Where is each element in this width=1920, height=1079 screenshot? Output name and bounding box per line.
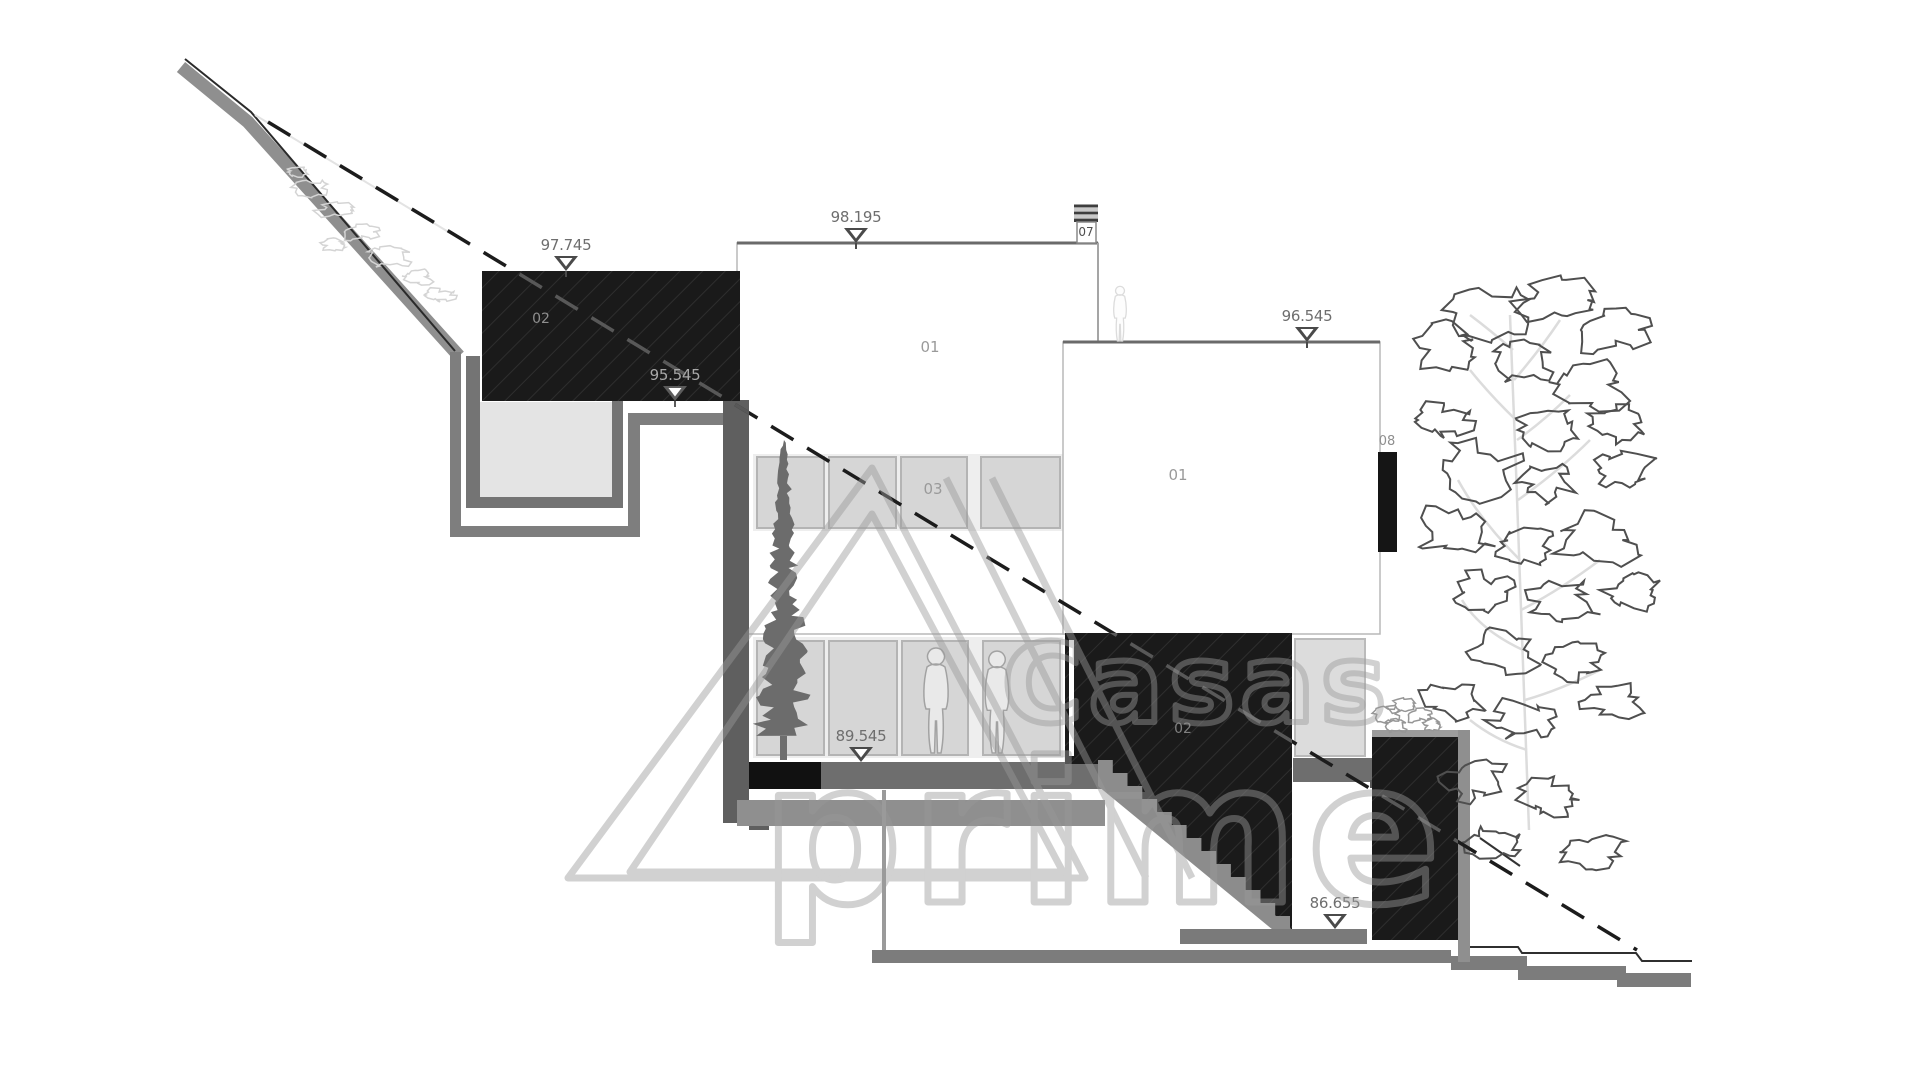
garage-interior [480, 402, 612, 497]
foliage-blob [1463, 827, 1520, 859]
section-drawing-canvas: 07 03 02 [0, 0, 1920, 1079]
foliage-blob [1443, 438, 1524, 504]
watermark-word-prime: prime [762, 721, 1450, 948]
hidden-ground-line [1480, 838, 1520, 866]
chimney-grille-stripe [1074, 212, 1098, 215]
foliage-blob [1418, 685, 1485, 722]
main-volume: 07 [737, 205, 1098, 635]
glazing-panel [981, 457, 1060, 528]
building-left-wall [723, 400, 749, 823]
right-volume-face [1063, 342, 1380, 634]
foliage-blob [1510, 275, 1595, 322]
chimney-grille-stripe [1074, 205, 1098, 208]
shutter-bar [1378, 452, 1397, 552]
garage-wall-bottom [466, 497, 623, 508]
foliage-blob [1515, 464, 1576, 505]
foliage-blob [1579, 683, 1645, 719]
section-drawing: 07 03 02 [0, 0, 1920, 1079]
marker-value: 98.195 [831, 208, 882, 226]
marker-value: 96.545 [1282, 307, 1333, 325]
roof-block-mass [482, 271, 740, 401]
garage-wall-left [466, 356, 480, 508]
foliage-blob [1466, 628, 1541, 676]
right-volume-label: 01 [1168, 466, 1187, 484]
foliage-blob [1525, 581, 1601, 622]
foliage-blob [1419, 506, 1495, 553]
foliage-blob [1453, 570, 1515, 613]
marker-value: 97.745 [541, 236, 592, 254]
tree-branches [1458, 315, 1600, 830]
foliage-blob [1516, 776, 1580, 817]
foliage-blob [320, 238, 345, 251]
foliage-blob [1581, 308, 1652, 354]
foliage-blob [1415, 401, 1476, 438]
outer-retaining-wall-right [628, 413, 640, 537]
roof-scale-figure [1114, 286, 1127, 341]
foliage-blob [402, 269, 434, 285]
chimney: 07 [1074, 205, 1098, 244]
chimney-grille-stripe [1074, 215, 1098, 218]
foliage-blob [1553, 510, 1641, 567]
mid-level-label: 03 [923, 480, 942, 498]
ground-step-band [1617, 973, 1691, 987]
elevation-marker-97-745: 97.745 [541, 236, 592, 277]
terrain-profile [181, 59, 470, 356]
foliage-blob [1495, 528, 1553, 565]
roof-block-label: 02 [532, 311, 550, 327]
garage-roof-block: 02 [482, 271, 740, 401]
marker-value: 95.545 [650, 366, 701, 384]
foliage-blob [1599, 572, 1660, 611]
foliage-blob [425, 288, 458, 302]
right-volume: 08 01 [1063, 286, 1397, 634]
shutter-label: 08 [1379, 434, 1396, 449]
outer-retaining-wall-left [450, 352, 461, 537]
foliage-blob [1493, 340, 1553, 383]
chimney-label: 07 [1078, 225, 1093, 239]
foliage-blob [1542, 642, 1605, 683]
foliage-blob [1594, 451, 1657, 488]
terrace-slab-link [628, 413, 725, 425]
ground-step-band [1518, 966, 1626, 980]
outer-retaining-wall-bottom [450, 526, 640, 537]
foliage-blob [1484, 698, 1557, 739]
basement-floor-band [872, 950, 1451, 963]
foliage-blob [1560, 835, 1627, 870]
main-volume-label: 01 [920, 338, 939, 356]
foliage-blob [1413, 319, 1475, 371]
chimney-grille-stripe [1074, 208, 1098, 211]
foliage-blob [1442, 287, 1529, 342]
garage-wall-right [612, 401, 623, 508]
